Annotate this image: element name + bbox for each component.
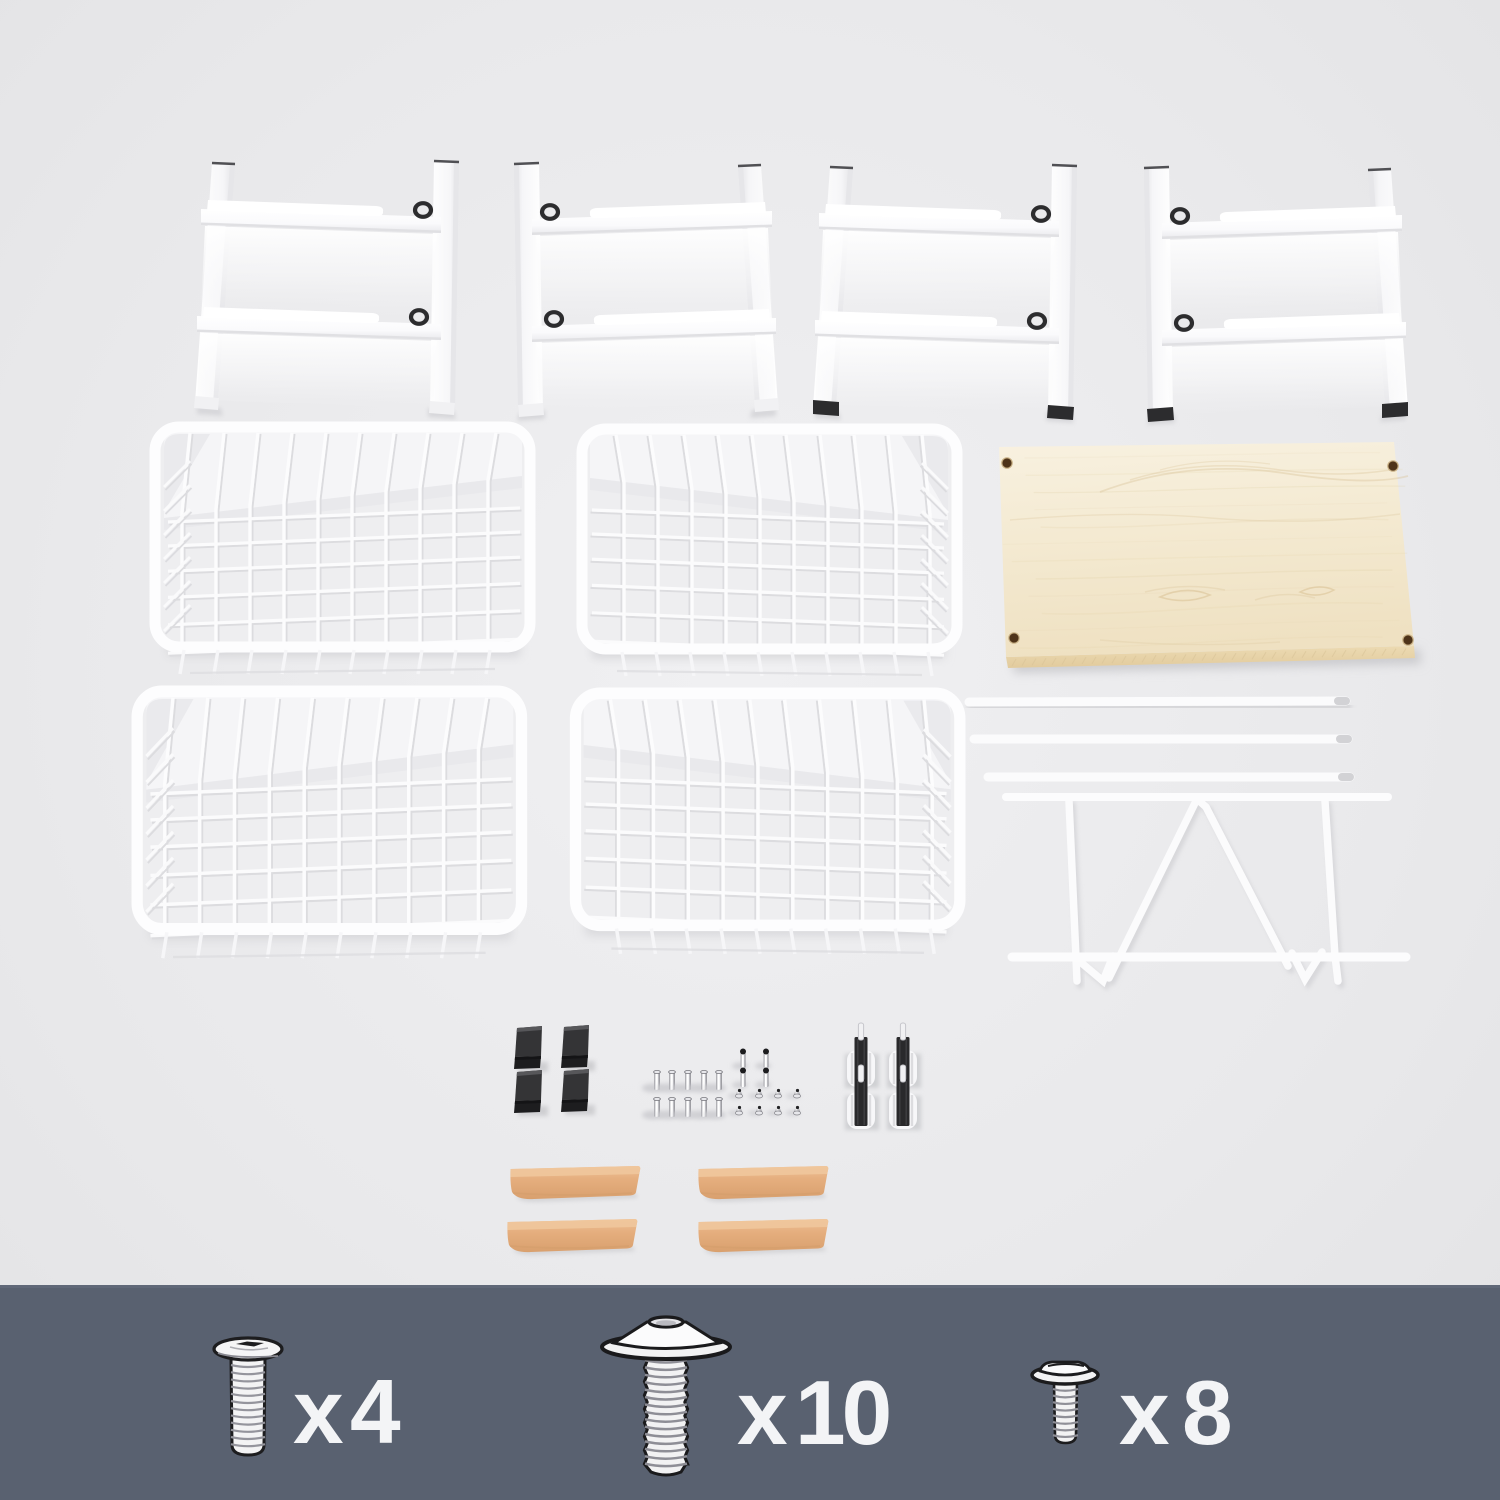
svg-text:x: x	[737, 1363, 788, 1464]
svg-text:10: 10	[795, 1363, 889, 1464]
svg-text:8: 8	[1182, 1363, 1233, 1464]
svg-text:4: 4	[350, 1362, 401, 1463]
svg-text:x: x	[293, 1362, 344, 1463]
svg-text:x: x	[1119, 1363, 1170, 1464]
